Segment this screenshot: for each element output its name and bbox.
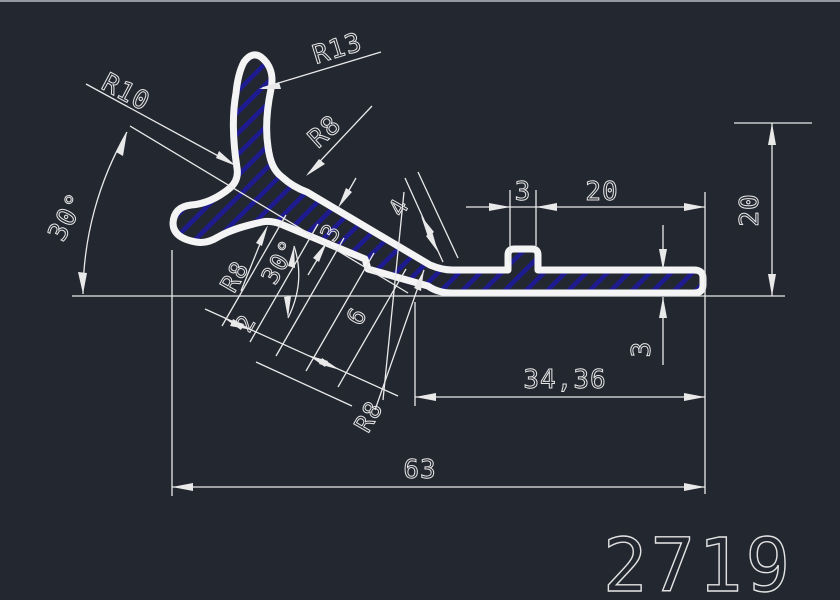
offset-6-label: 6 xyxy=(341,303,373,330)
length-total-label: 63 xyxy=(403,455,436,485)
cad-canvas[interactable]: 30° R10 R13 R8 R8 30° xyxy=(0,0,840,600)
top-length-label: 20 xyxy=(585,177,618,207)
notch-width-label: 3 xyxy=(515,177,532,207)
profile-outline xyxy=(173,55,703,293)
r8-mid-label: R8 xyxy=(215,256,255,297)
r8-bottom-label: R8 xyxy=(349,396,389,437)
dimension-r8-bottom: R8 xyxy=(349,270,424,437)
r10-label: R10 xyxy=(97,68,155,118)
angle-left-label: 30° xyxy=(43,188,93,246)
thickness-right-label: 3 xyxy=(627,341,657,358)
r8-top-label: R8 xyxy=(303,110,348,155)
length-mid-label: 34,36 xyxy=(523,365,606,395)
dimension-height-right: 20 xyxy=(734,123,812,296)
drawing-svg: 30° R10 R13 R8 R8 30° xyxy=(0,0,840,600)
dimension-r10: R10 xyxy=(86,68,236,166)
offset-4-label: 4 xyxy=(383,194,415,221)
height-right-label: 20 xyxy=(735,193,765,226)
r13-label: R13 xyxy=(309,27,366,70)
part-number: 2719 xyxy=(603,523,793,600)
dimension-r13: R13 xyxy=(259,27,381,89)
dimension-angle-mid: 30° xyxy=(256,235,303,318)
dimension-r8-top: R8 xyxy=(303,106,372,176)
profile-section xyxy=(173,55,703,293)
dimension-notch-and-top-length: 3 20 xyxy=(466,177,705,494)
incline-chain-dimension: 2 6 xyxy=(205,303,398,406)
